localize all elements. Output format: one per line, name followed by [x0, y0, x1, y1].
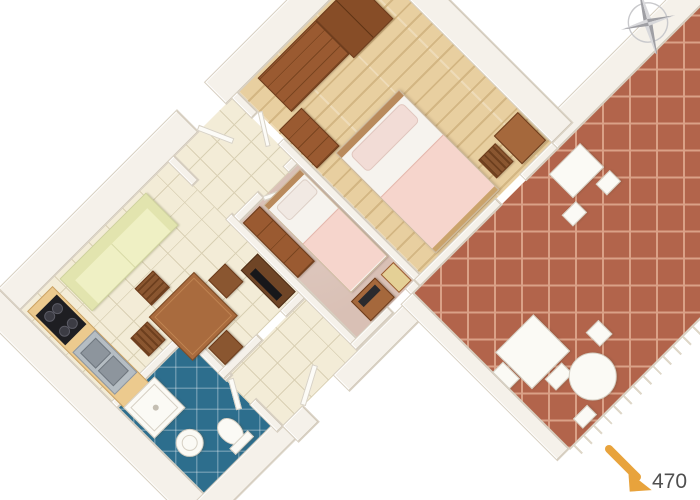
distance-label: 470 m [652, 470, 700, 500]
compass-rose-icon [613, 0, 683, 54]
apartment-plan [20, 0, 700, 500]
floorplan-screenshot: 470 m [0, 0, 700, 500]
